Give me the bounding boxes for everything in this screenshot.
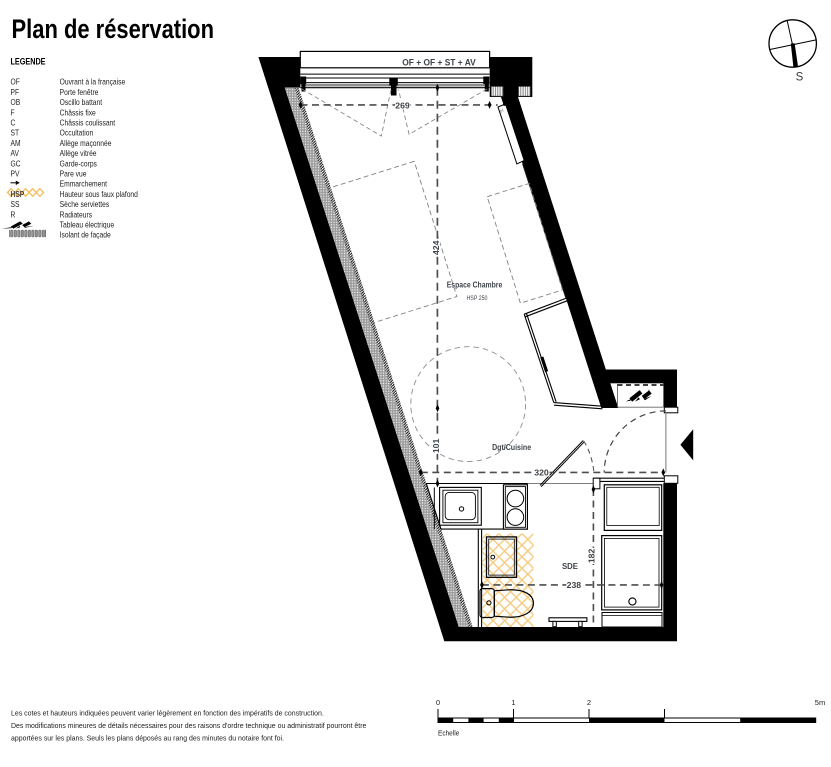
svg-text:OF: OF — [10, 77, 20, 87]
svg-text:1: 1 — [511, 698, 515, 707]
svg-text:101: 101 — [431, 438, 441, 453]
svg-text:AM: AM — [10, 138, 20, 148]
svg-text:Allège vitrée: Allège vitrée — [60, 148, 97, 158]
svg-text:Garde-corps: Garde-corps — [60, 158, 97, 168]
svg-text:Porte fenêtre: Porte fenêtre — [60, 87, 99, 97]
svg-text:Radiateurs: Radiateurs — [60, 209, 93, 219]
svg-text:OB: OB — [10, 97, 20, 107]
svg-text:Oscillo battant: Oscillo battant — [60, 97, 103, 107]
svg-text:LEGENDE: LEGENDE — [10, 56, 45, 67]
svg-text:2: 2 — [587, 698, 591, 707]
svg-text:apportées sur les plans. Seuls: apportées sur les plans. Seuls les plans… — [11, 735, 284, 743]
svg-text:Sèche serviettes: Sèche serviettes — [60, 199, 110, 209]
svg-text:HSP: HSP — [10, 189, 24, 199]
svg-text:GC: GC — [10, 158, 20, 168]
svg-text:F: F — [10, 107, 14, 117]
svg-text:Hauteur sous faux plafond: Hauteur sous faux plafond — [60, 189, 138, 199]
svg-text:AV: AV — [10, 148, 19, 158]
svg-text:Pare vue: Pare vue — [60, 169, 87, 179]
svg-text:Allège maçonnée: Allège maçonnée — [60, 138, 112, 148]
svg-text:Châssis fixe: Châssis fixe — [60, 107, 96, 117]
svg-text:Les cotes et hauteurs indiquée: Les cotes et hauteurs indiquées peuvent … — [11, 710, 324, 718]
svg-text:SDE: SDE — [562, 561, 578, 571]
svg-text:238: 238 — [567, 580, 582, 590]
svg-text:PF: PF — [10, 87, 19, 97]
svg-text:SS: SS — [10, 199, 19, 209]
svg-text:R: R — [10, 209, 15, 219]
svg-text:Isolant de façade: Isolant de façade — [60, 230, 111, 240]
svg-text:269: 269 — [395, 100, 410, 110]
svg-text:Emmarchement: Emmarchement — [60, 179, 108, 189]
svg-text:ST: ST — [10, 128, 19, 138]
svg-text:0: 0 — [436, 698, 440, 707]
svg-text:Occultation: Occultation — [60, 128, 94, 138]
svg-text:424: 424 — [431, 240, 441, 255]
svg-text:S: S — [796, 72, 804, 84]
svg-text:5m: 5m — [815, 698, 825, 707]
svg-text:HSP 250: HSP 250 — [467, 295, 488, 302]
svg-text:320: 320 — [534, 467, 549, 477]
svg-text:C: C — [10, 118, 15, 128]
svg-text:182: 182 — [586, 548, 596, 563]
svg-text:Plan de réservation: Plan de réservation — [12, 14, 215, 44]
svg-text:PV: PV — [10, 169, 20, 179]
svg-text:Châssis coulissant: Châssis coulissant — [60, 118, 116, 128]
svg-text:Tableau électrique: Tableau électrique — [60, 220, 114, 230]
svg-text:Dgt/Cuisine: Dgt/Cuisine — [492, 442, 531, 452]
svg-text:OF + OF + ST + AV: OF + OF + ST + AV — [402, 57, 476, 67]
svg-text:Espace Chambre: Espace Chambre — [447, 279, 503, 289]
svg-text:Des modifications mineures de: Des modifications mineures de détails né… — [11, 722, 366, 730]
svg-text:Ouvrant à la française: Ouvrant à la française — [60, 77, 126, 87]
svg-text:Echelle: Echelle — [438, 729, 459, 738]
